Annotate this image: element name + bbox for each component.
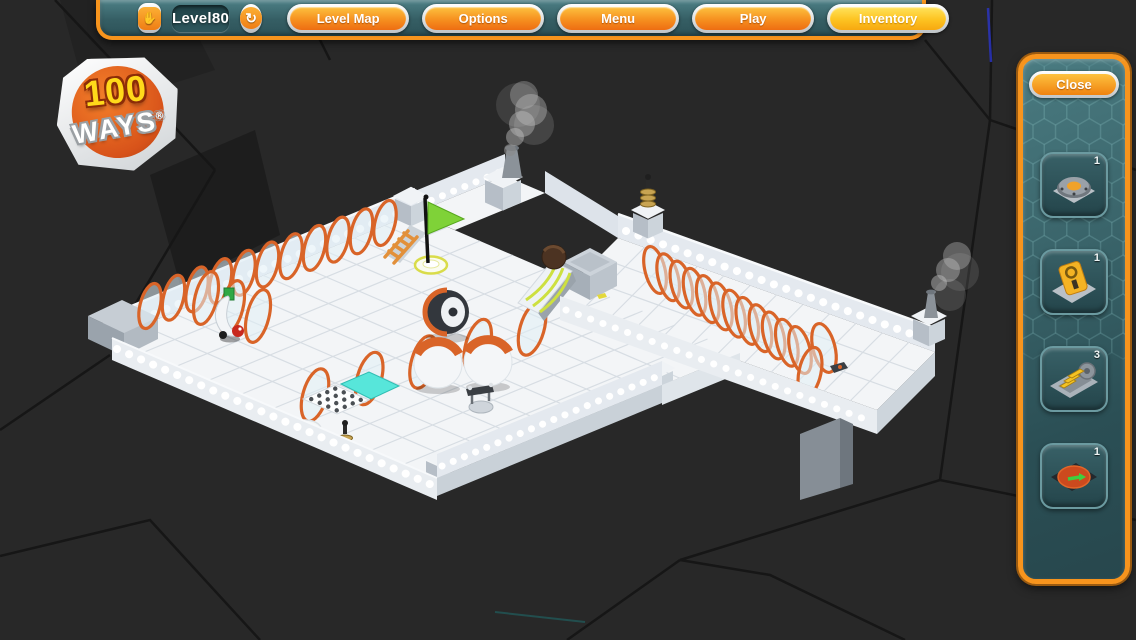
slot-count: 1 xyxy=(1094,155,1100,167)
game-logo: 100 WAYS® xyxy=(50,50,185,178)
pressure-plate-icon xyxy=(1049,163,1099,207)
slot-count: 1 xyxy=(1094,446,1100,458)
striped-ball[interactable] xyxy=(414,340,462,394)
conveyor-icon xyxy=(1048,356,1100,402)
play-button[interactable]: Play xyxy=(692,4,814,33)
slot-count: 1 xyxy=(1094,252,1100,264)
hand-icon: ✋ xyxy=(138,7,161,30)
slot-switch-card[interactable]: 1 xyxy=(1040,249,1108,315)
wooden-ball[interactable] xyxy=(542,245,566,269)
inventory-panel: Close 1 xyxy=(1018,54,1130,584)
teleport-pad-icon xyxy=(1048,453,1100,499)
level-map-button[interactable]: Level Map xyxy=(287,4,409,33)
restart-button[interactable]: ↻ xyxy=(240,4,262,33)
wheel-ball[interactable] xyxy=(425,290,469,343)
inventory-slots: 1 1 xyxy=(1040,152,1108,509)
slot-count: 3 xyxy=(1094,349,1100,361)
game-screen: 100 WAYS® ✋ Level80 ↻ Level Map Options … xyxy=(0,0,1136,640)
hand-button[interactable]: ✋ xyxy=(138,3,161,33)
restart-icon: ↻ xyxy=(240,7,262,29)
menu-button[interactable]: Menu xyxy=(557,4,679,33)
registered-mark: ® xyxy=(155,110,166,122)
slot-conveyor-machine[interactable]: 3 xyxy=(1040,346,1108,412)
switch-card-icon xyxy=(1049,259,1099,305)
options-button[interactable]: Options xyxy=(422,4,544,33)
striped-ball[interactable] xyxy=(464,338,512,392)
menu-buttons: Level Map Options Menu Play Inventory xyxy=(287,4,949,33)
close-button[interactable]: Close xyxy=(1029,71,1119,98)
top-toolbar: ✋ Level80 ↻ Level Map Options Menu Play … xyxy=(96,0,926,40)
inventory-button[interactable]: Inventory xyxy=(827,4,949,33)
level-indicator: Level80 xyxy=(172,5,229,32)
slot-pressure-plate[interactable]: 1 xyxy=(1040,152,1108,218)
slot-teleport-pad[interactable]: 1 xyxy=(1040,443,1108,509)
